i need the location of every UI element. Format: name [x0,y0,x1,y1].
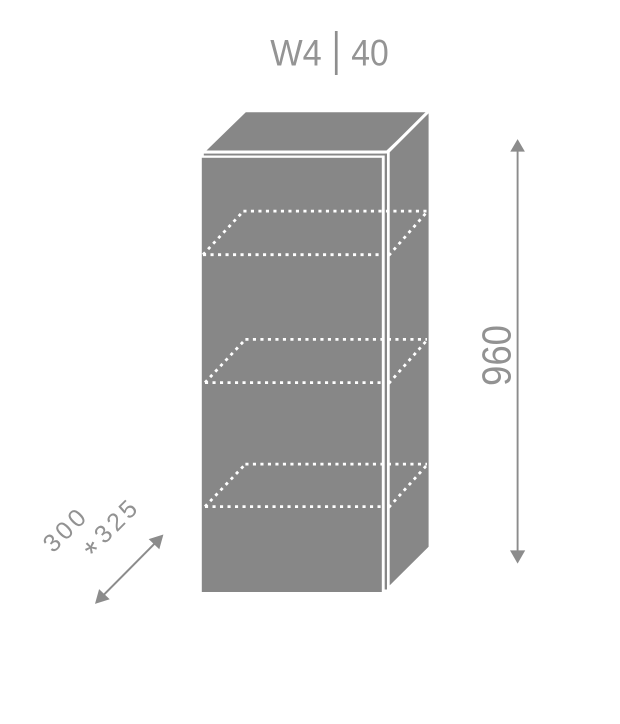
svg-text:960: 960 [474,325,520,386]
svg-text:40: 40 [351,32,389,74]
svg-text:W4: W4 [270,32,322,74]
